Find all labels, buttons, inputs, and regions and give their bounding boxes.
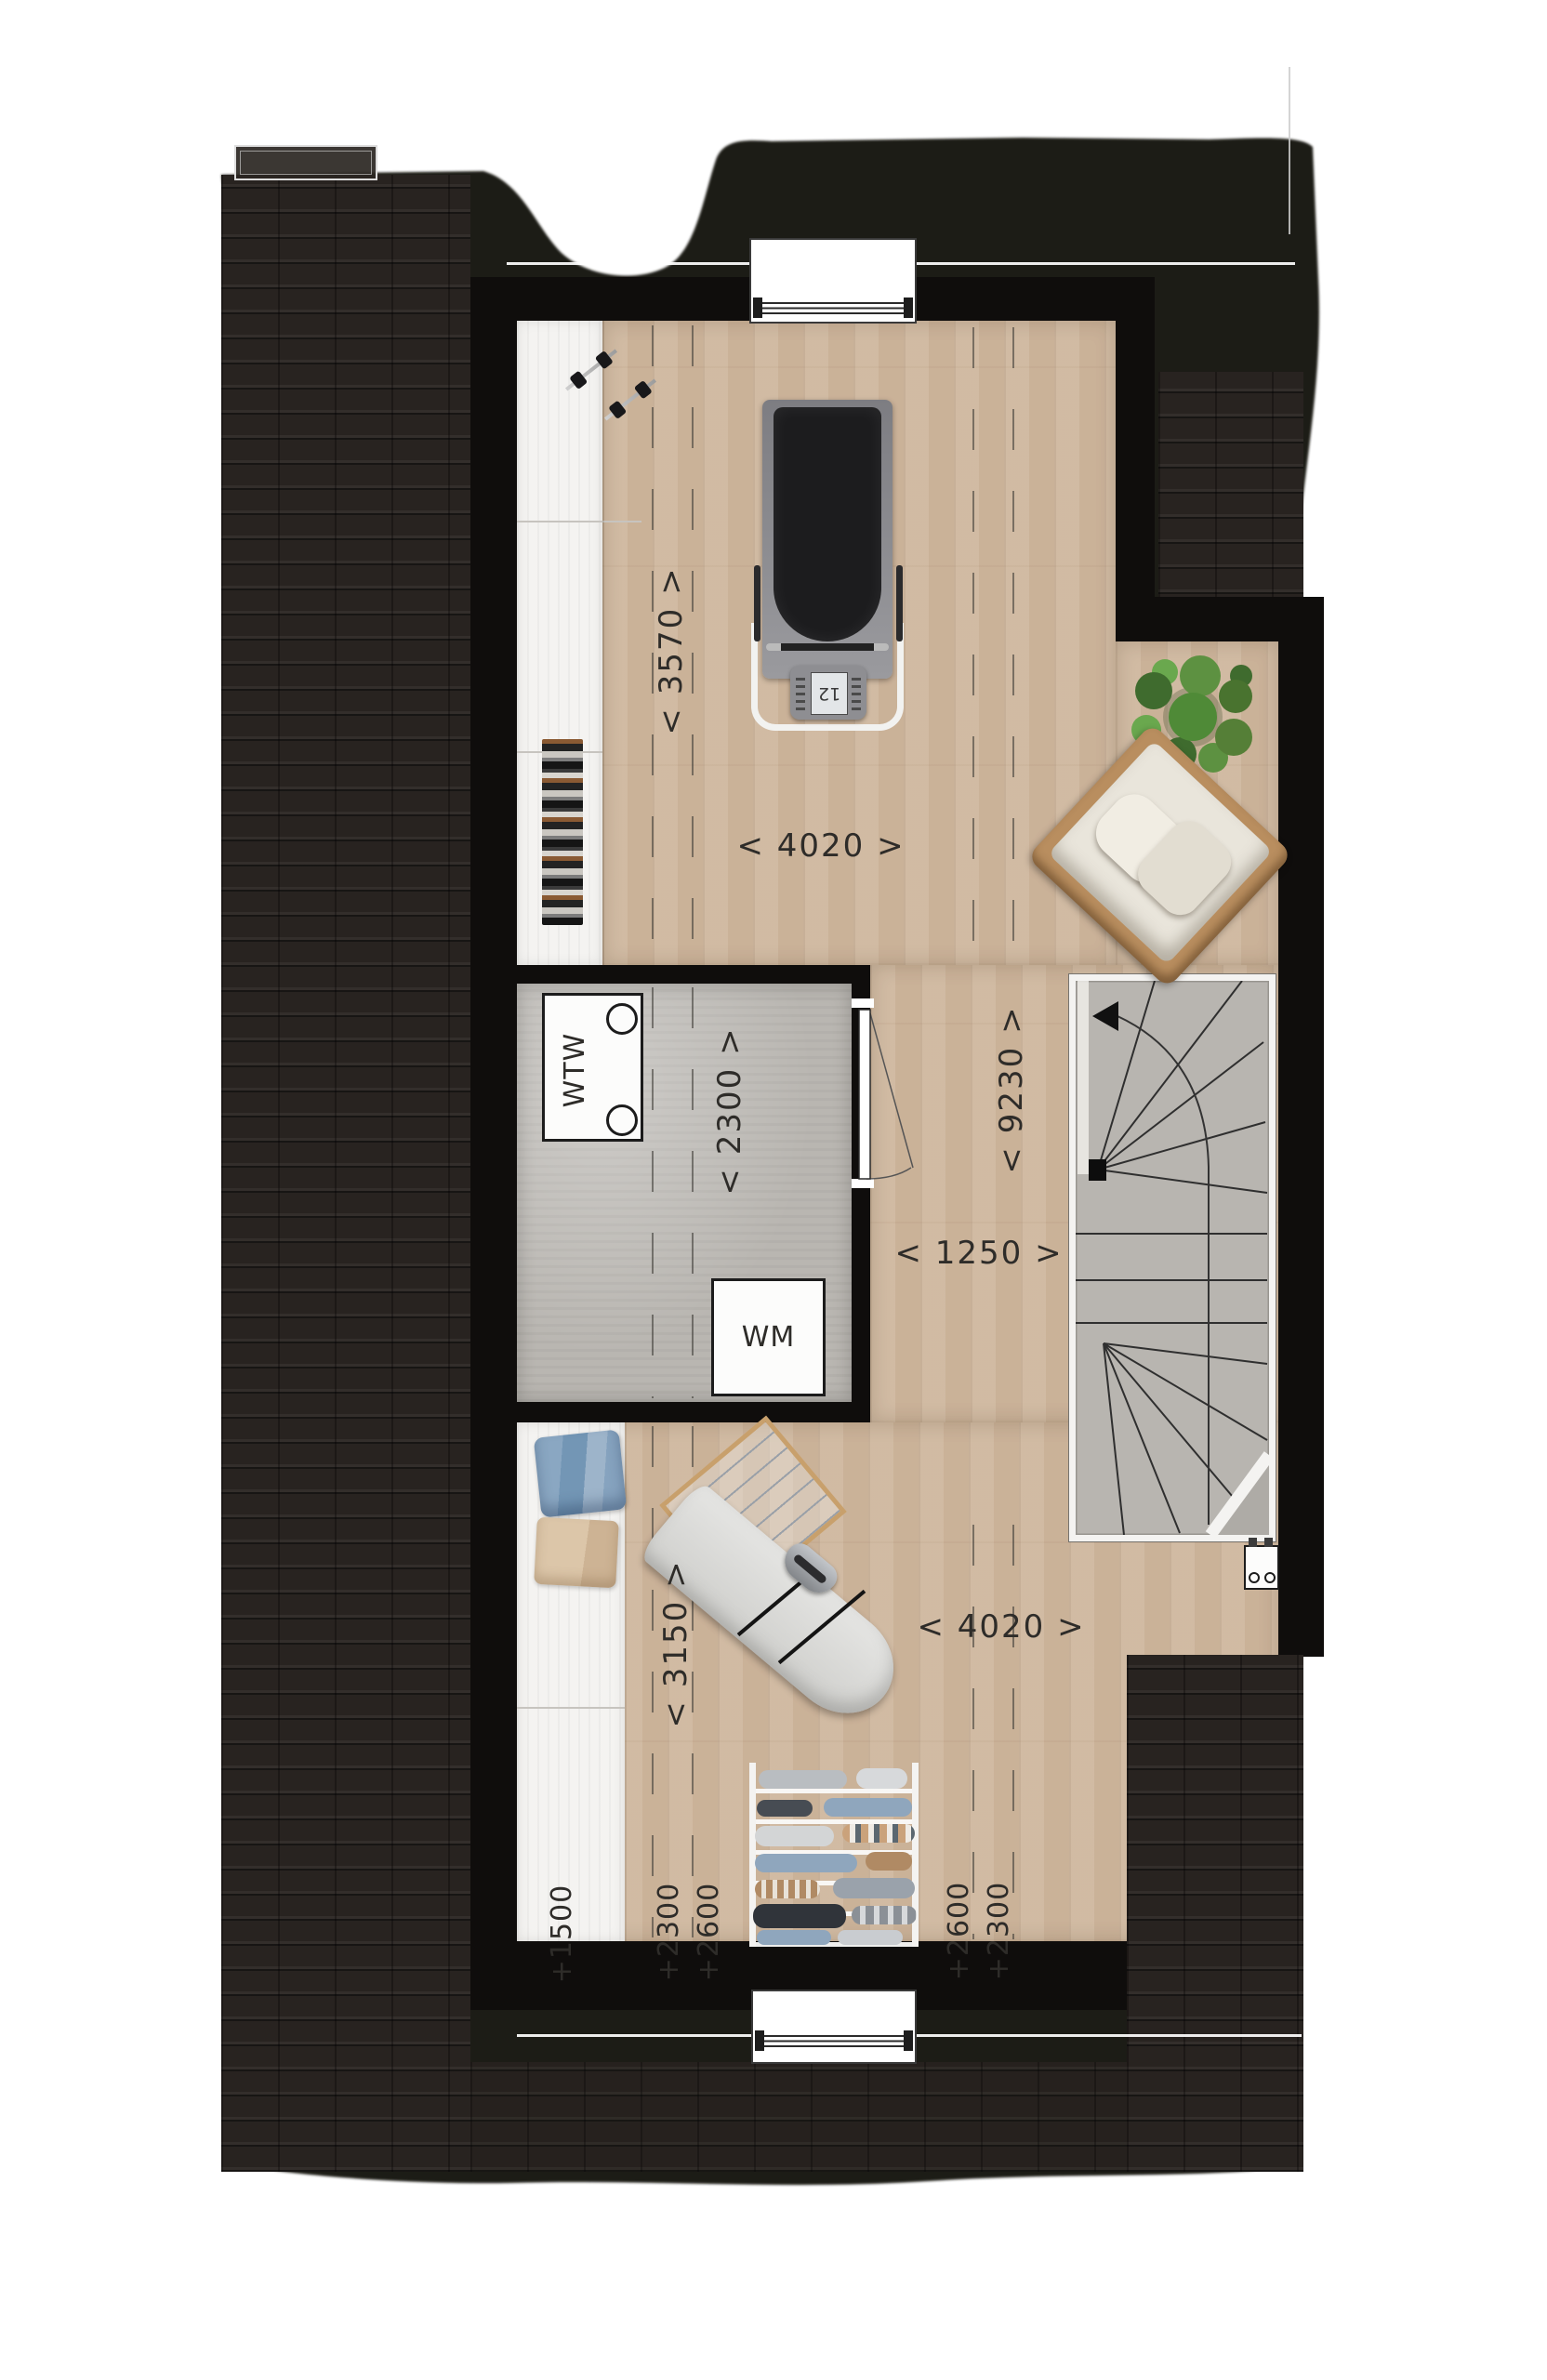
- dimension-label-1250: < 1250 >: [877, 1235, 1081, 1272]
- height-label-2300-left: +2300: [652, 1858, 685, 2006]
- console-buttons: [796, 675, 805, 710]
- knee-wall-line: [517, 521, 641, 522]
- height-label-2600-right: +2600: [942, 1857, 975, 2005]
- window-jamb: [904, 2030, 913, 2051]
- dimension-label-9230: < 9230 >: [993, 978, 1030, 1201]
- window-glazing: [760, 300, 906, 314]
- door-swing-arc: [866, 1168, 911, 1179]
- valve-knob: [1249, 1538, 1257, 1547]
- window-bottom: [751, 1990, 917, 2064]
- winder-treads-upper: [1098, 981, 1267, 1193]
- treadmill-handle-post: [896, 565, 903, 641]
- folded-jeans: [534, 1429, 627, 1517]
- height-contour-line: [652, 987, 654, 1398]
- iron-handle: [792, 1554, 827, 1585]
- technical-room-door: [846, 985, 930, 1190]
- knee-wall-line: [517, 1707, 625, 1709]
- window-jamb: [753, 297, 762, 318]
- door-jamb: [852, 998, 874, 1008]
- hanging-clothes-item: [757, 1800, 813, 1817]
- window-top: [749, 238, 917, 324]
- dimension-label-3570: < 3570 >: [653, 539, 690, 762]
- window-jamb: [904, 297, 913, 318]
- meter-dial: [1264, 1572, 1276, 1583]
- washing-machine-label: WM: [714, 1281, 823, 1394]
- washing-machine: WM: [711, 1278, 826, 1396]
- hanging-clothes-item: [824, 1798, 912, 1817]
- door-leaf: [859, 1010, 870, 1179]
- folded-shirt: [534, 1517, 619, 1589]
- wtw-duct-port: [606, 1104, 638, 1136]
- straight-treads: [1076, 1234, 1267, 1323]
- hanging-clothes-item: [838, 1930, 903, 1945]
- staircase-treads: [1076, 981, 1269, 1535]
- dimension-label-4020-top: < 4020 >: [719, 827, 923, 865]
- valve-knob: [1264, 1538, 1273, 1547]
- stair-inner-frame: [1077, 982, 1269, 1535]
- treadmill: 12: [749, 400, 907, 734]
- book-stack: [542, 739, 583, 925]
- newel-post: [1089, 1159, 1106, 1181]
- dimension-label-4020-bottom: < 4020 >: [899, 1608, 1104, 1646]
- meter-dial: [1249, 1572, 1260, 1583]
- door-swing-line: [870, 1013, 913, 1168]
- staircase: [1069, 974, 1276, 1541]
- hanging-clothes-item: [852, 1906, 917, 1924]
- wtw-label: WTW: [561, 1014, 588, 1126]
- hanging-clothes-item: [759, 1770, 847, 1789]
- dumbbells: [558, 353, 669, 456]
- hanging-clothes-item: [755, 1854, 857, 1872]
- hanging-clothes-item: [757, 1930, 831, 1945]
- plant-foliage: [1169, 693, 1217, 741]
- dimension-label-3150: < 3150 >: [657, 1532, 694, 1755]
- roof-tiles-right-upper: [1158, 372, 1303, 619]
- roof-tiles-right-lower: [1127, 1655, 1303, 2172]
- treadmill-crossbar: [766, 643, 889, 651]
- dimension-label-2300: < 2300 >: [711, 1009, 748, 1213]
- hanging-clothes-item: [856, 1768, 907, 1789]
- console-display-value: 12: [818, 683, 840, 704]
- hanging-clothes-item: [833, 1878, 915, 1898]
- door-jamb: [852, 1179, 874, 1188]
- height-contour-line: [972, 327, 974, 963]
- roof-tiles-bottom-strip: [470, 2062, 1127, 2172]
- chimney-inner-line: [240, 151, 372, 175]
- chimney-outline: [234, 145, 377, 180]
- height-label-2300-right: +2300: [982, 1857, 1015, 2005]
- stair-walk-line: [1117, 1016, 1209, 1525]
- stairs-direction-arrow-icon: [1092, 1001, 1118, 1031]
- wtw-unit: WTW: [542, 993, 643, 1142]
- console-buttons: [852, 675, 861, 710]
- height-label-2600-left: +2600: [692, 1858, 725, 2006]
- floor-plan-canvas: WTW WM 12: [0, 0, 1547, 2380]
- dumbbell-bar: [565, 349, 617, 390]
- height-contour-line: [692, 325, 694, 963]
- ridge-antenna-line: [1289, 67, 1290, 234]
- clothes-rack: [749, 1763, 919, 1947]
- dumbbell-bar: [604, 378, 656, 420]
- hanging-clothes-item: [755, 1826, 834, 1846]
- hanging-clothes-item: [866, 1852, 912, 1871]
- treadmill-console: 12: [790, 666, 866, 720]
- wtw-duct-port: [606, 1003, 638, 1035]
- height-contour-line: [692, 987, 694, 1398]
- hanging-clothes-item: [755, 1880, 820, 1898]
- console-screen: 12: [811, 672, 848, 715]
- hanging-clothes-item: [842, 1824, 915, 1843]
- stair-stringer: [1078, 981, 1089, 1174]
- treadmill-belt: [773, 407, 881, 641]
- height-label-1500: +1500: [545, 1859, 578, 2008]
- height-contour-line: [1012, 327, 1014, 963]
- treadmill-handle-post: [754, 565, 760, 641]
- meter-fixture: [1244, 1545, 1279, 1590]
- window-glazing: [762, 2033, 906, 2047]
- roof-tiles-left-band: [221, 175, 470, 2172]
- hanging-clothes-item: [753, 1904, 846, 1928]
- window-jamb: [755, 2030, 764, 2051]
- dumbbell-icon: [600, 374, 662, 427]
